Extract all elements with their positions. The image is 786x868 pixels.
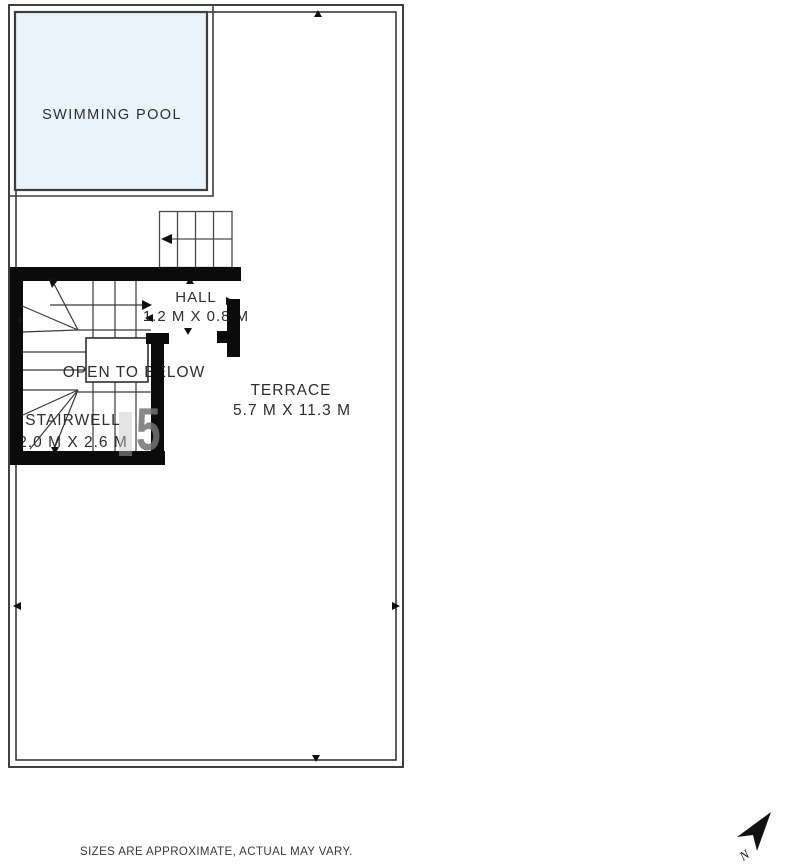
north-label: N [736,846,754,865]
north-arrow-icon [737,812,771,851]
watermark-fragment [119,412,132,456]
floor-plan-page: SWIMMING POOL HALL 1.2 M X 0.8 M OPEN TO… [0,0,786,868]
dimension-markers [13,10,400,762]
right-wall-arrow-icon [392,602,400,610]
hall-down-arrow-icon [184,328,192,335]
left-wall-arrow-icon [13,602,21,610]
stair-walkline-arrow-icon [142,300,152,310]
top-wall-arrow-icon [314,10,322,17]
hall-left-arrow-icon [145,314,153,322]
watermark-digit: 5 [136,400,161,460]
north-compass: N [736,812,771,864]
bottom-wall-arrow-icon [312,755,320,762]
floor-plan-walls: N [0,0,786,868]
